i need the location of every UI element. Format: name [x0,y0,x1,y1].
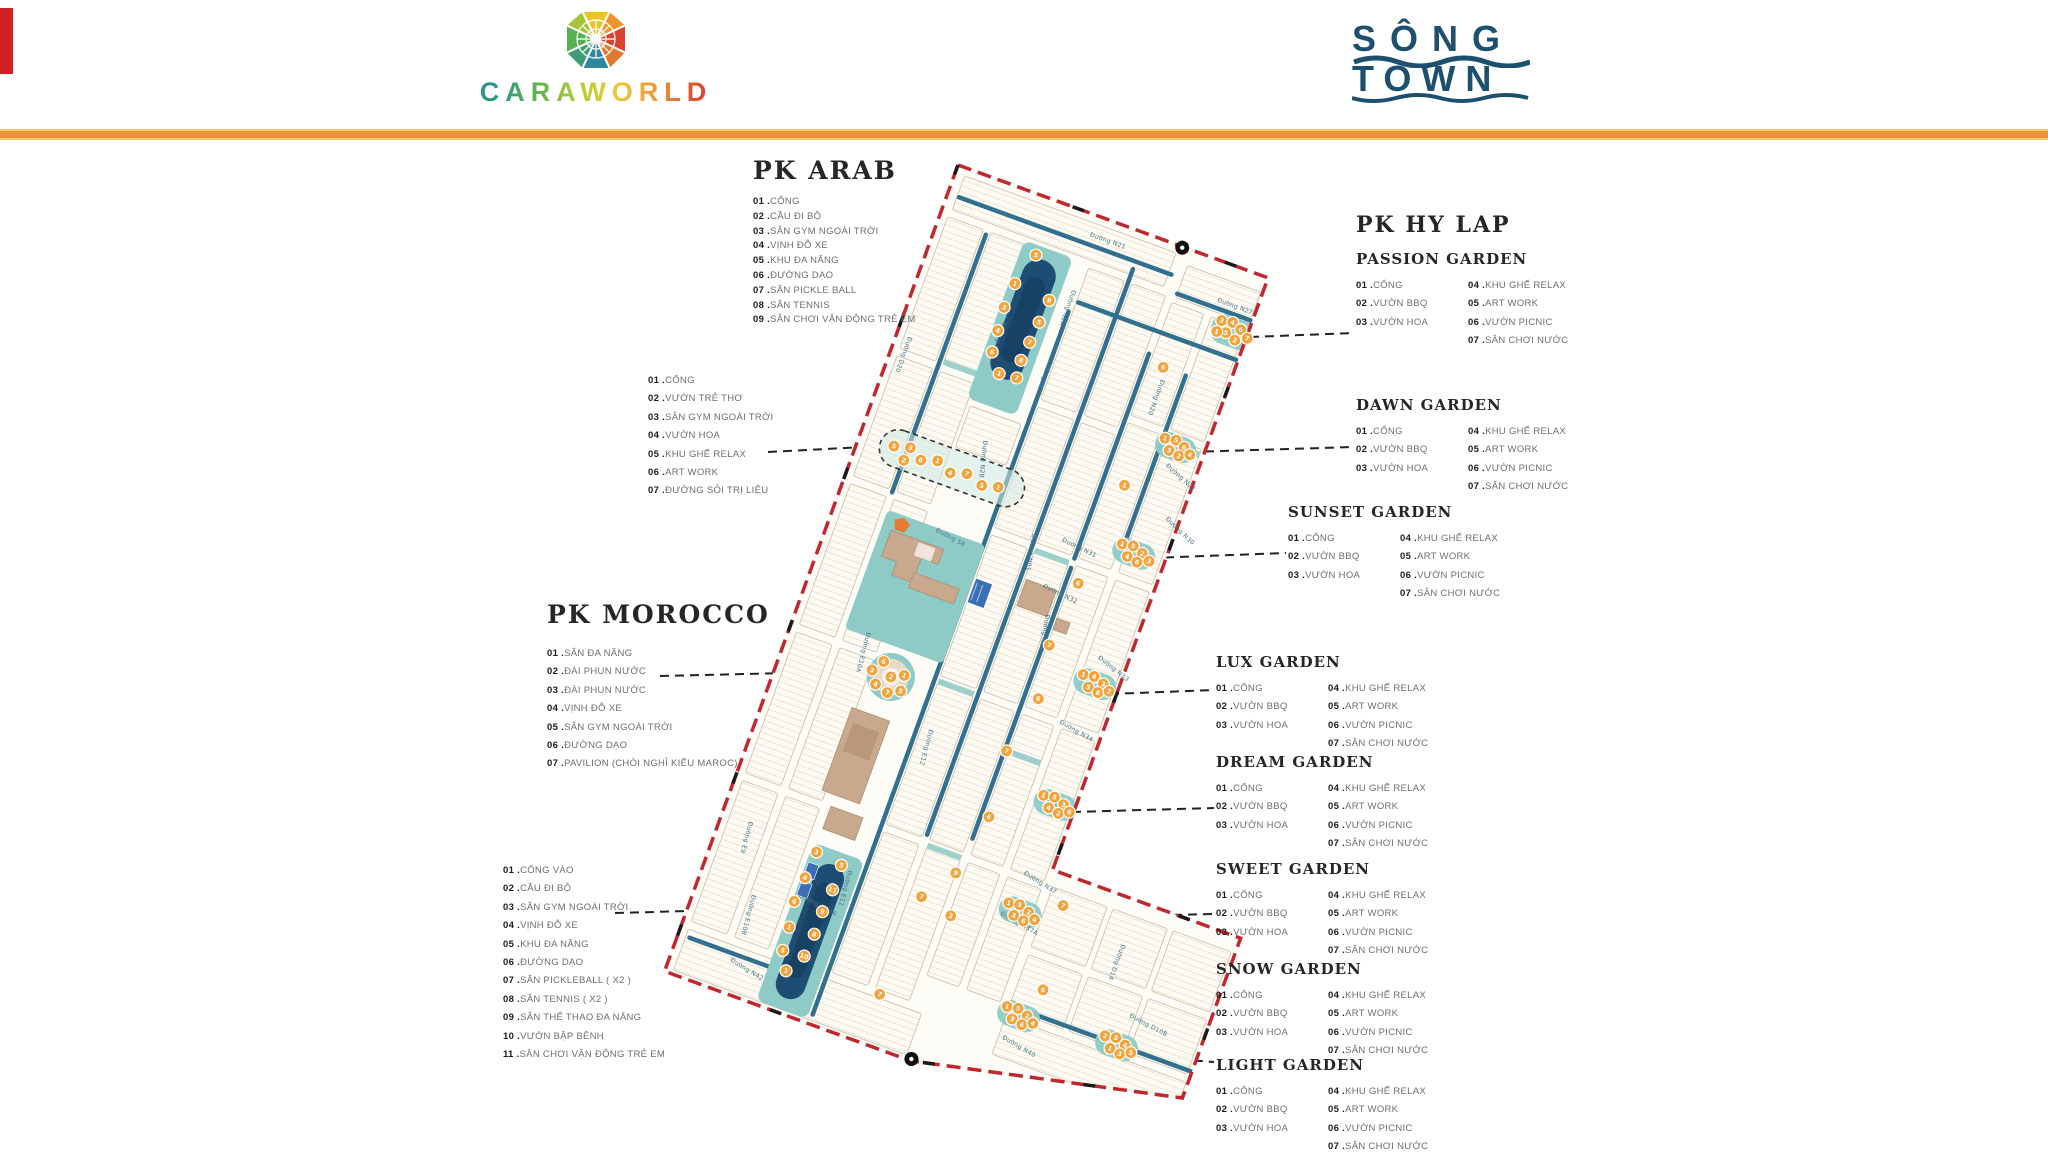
legend-item-label: VƯỜN HOA [665,430,720,441]
legend-item: 04VƯỜN HOA [648,427,773,445]
legend-item: 06VƯỜN PICNIC [1468,314,1598,332]
garden-items-left: 01CỔNG02VƯỜN BBQ03VƯỜN HOA [1288,530,1400,604]
legend-item-number: 07 [648,482,665,500]
legend-item: 05KHU GHẾ RELAX [648,446,773,464]
legend-item-label: SÂN CHƠI NƯỚC [1345,1141,1428,1152]
garden-items-right: 04KHU GHẾ RELAX05ART WORK06VƯỜN PICNIC07… [1328,780,1458,854]
legend-item-number: 07 [753,284,770,299]
legend-item-number: 03 [1216,1024,1233,1042]
legend-item-label: SÂN CHƠI NƯỚC [1485,335,1568,346]
legend-item-label: VƯỜN HOA [1305,570,1360,581]
legend-item: 03VƯỜN HOA [1216,1120,1328,1138]
legend-item-number: 04 [1328,1083,1345,1101]
legend-item-label: ĐƯỜNG DẠO [520,957,583,968]
legend-item: 02VƯỜN BBQ [1216,698,1328,716]
legend-pk-morocco: PK MOROCCO 01SÂN ĐA NĂNG02ĐÀI PHUN NƯỚC0… [547,600,770,774]
garden-items-left: 01CỔNG02VƯỜN BBQ03VƯỜN HOA [1216,780,1328,854]
header: CARAWORLD SÔNG TOWN [0,0,2048,129]
legend-item-label: ART WORK [665,467,718,478]
garden-title: LUX GARDEN [1216,653,1458,671]
legend-item: 04KHU GHẾ RELAX [1328,780,1458,798]
legend-item: 03ĐÀI PHUN NƯỚC [547,682,770,700]
legend-item-number: 05 [1468,295,1485,313]
legend-item-label: KHU GHẾ RELAX [1485,426,1566,437]
legend-item-number: 03 [1356,314,1373,332]
legend-item-label: CỔNG [1373,280,1403,291]
legend-item: 04KHU GHẾ RELAX [1468,423,1598,441]
legend-item-label: ART WORK [1345,701,1398,712]
legend-item: 04KHU GHẾ RELAX [1468,277,1598,295]
legend-item-number: 04 [503,917,520,935]
legend-item: 05KHU ĐA NĂNG [753,254,916,269]
legend-item-label: SÂN CHƠI NƯỚC [1345,1045,1428,1056]
legend-item-number: 01 [1216,780,1233,798]
legend-item-number: 01 [503,862,520,880]
site-map: Đường N21Đường N2AĐường N2CĐường N2BĐườn… [0,0,2048,1152]
legend-item-label: VƯỜN PICNIC [1345,1123,1413,1134]
legend-item-number: 07 [1468,332,1485,350]
legend-item: 07SÂN CHƠI NƯỚC [1468,478,1598,496]
legend-item-label: VƯỜN PICNIC [1485,463,1553,474]
legend-item-label: VƯỜN BBQ [1233,908,1288,919]
legend-item-label: ART WORK [1485,444,1538,455]
pk-morocco-title: PK MOROCCO [547,600,770,629]
legend-item: 03VƯỜN HOA [1216,924,1328,942]
legend-item-label: SÂN PICKLE BALL [770,285,856,296]
caraworld-logo: CARAWORLD [462,3,730,108]
legend-item: 02VƯỜN TRẺ THƠ [648,390,773,408]
legend-item: 04VỊNH ĐỖ XE [503,917,665,935]
legend-item-label: SÂN CHƠI NƯỚC [1345,945,1428,956]
legend-item-label: CỔNG [1233,1086,1263,1097]
legend-item: 05KHU ĐA NĂNG [503,936,665,954]
legend-item: 09SÂN THỂ THAO ĐA NĂNG [503,1009,665,1027]
morocco-south-items: 01CỔNG VÀO02CẦU ĐI BỘ03SÂN GYM NGOÀI TRỜ… [503,862,665,1064]
legend-item: 01SÂN ĐA NĂNG [547,645,770,663]
legend-item-number: 04 [753,239,770,254]
legend-item-number: 04 [547,700,564,718]
legend-item-label: VƯỜN PICNIC [1345,927,1413,938]
legend-item-number: 04 [648,427,665,445]
legend-item-number: 09 [753,313,770,328]
legend-item-number: 05 [753,254,770,269]
legend-item: 07SÂN PICKLEBALL ( X2 ) [503,972,665,990]
legend-item-number: 06 [1328,817,1345,835]
garden-items-right: 04KHU GHẾ RELAX05ART WORK06VƯỜN PICNIC07… [1400,530,1530,604]
legend-item: 04KHU GHẾ RELAX [1328,987,1458,1005]
garden-legend-dawn-garden: DAWN GARDEN01CỔNG02VƯỜN BBQ03VƯỜN HOA04K… [1356,396,1598,497]
legend-item-label: VƯỜN PICNIC [1345,1027,1413,1038]
legend-item-number: 08 [753,299,770,314]
songtown-word-song: SÔNG [1352,22,1542,56]
legend-item-number: 07 [1468,478,1485,496]
legend-item-label: ART WORK [1345,908,1398,919]
legend-item-number: 05 [503,936,520,954]
legend-item-number: 06 [547,737,564,755]
legend-item-number: 04 [1328,780,1345,798]
legend-item-label: ART WORK [1485,298,1538,309]
legend-item-number: 07 [1328,835,1345,853]
legend-item-number: 02 [547,663,564,681]
legend-item: 05ART WORK [1400,548,1530,566]
legend-item-label: SÂN CHƠI NƯỚC [1417,588,1500,599]
legend-item-label: VƯỜN PICNIC [1345,720,1413,731]
legend-item: 07PAVILION (CHÒI NGHỈ KIỂU MAROC) [547,755,770,773]
legend-item-label: SÂN THỂ THAO ĐA NĂNG [520,1012,641,1023]
legend-item-label: VƯỜN PICNIC [1485,317,1553,328]
legend-item: 01CỔNG [1216,987,1328,1005]
legend-item-number: 03 [648,409,665,427]
legend-item-label: SÂN CHƠI VẬN ĐỘNG TRẺ EM [770,314,916,325]
legend-item-label: ART WORK [1345,1104,1398,1115]
legend-item-number: 04 [1328,987,1345,1005]
legend-item-label: CẦU ĐI BỘ [520,883,571,894]
legend-pk-arab: PK ARAB 01CỔNG02CẦU ĐI BỘ03SÂN GYM NGOÀI… [753,156,916,328]
legend-item-label: VƯỜN HOA [1233,820,1288,831]
legend-item-number: 06 [1468,460,1485,478]
legend-item: 05ART WORK [1328,798,1458,816]
legend-item: 06ĐƯỜNG DẠO [753,269,916,284]
legend-item: 05ART WORK [1328,1005,1458,1023]
legend-item-label: VƯỜN HOA [1373,317,1428,328]
legend-item: 06ĐƯỜNG DẠO [547,737,770,755]
legend-item-label: VƯỜN BBQ [1233,801,1288,812]
legend-item: 06VƯỜN PICNIC [1328,924,1458,942]
legend-item-label: ART WORK [1345,801,1398,812]
legend-item: 01CỔNG [753,195,916,210]
legend-item: 06VƯỜN PICNIC [1328,1024,1458,1042]
legend-item-label: ART WORK [1345,1008,1398,1019]
legend-item-number: 06 [1400,567,1417,585]
legend-morocco-south: 01CỔNG VÀO02CẦU ĐI BỘ03SÂN GYM NGOÀI TRỜ… [503,862,665,1064]
legend-item: 03VƯỜN HOA [1216,717,1328,735]
legend-item-label: SÂN GYM NGOÀI TRỜI [770,226,878,237]
legend-item-number: 02 [753,210,770,225]
legend-item-number: 05 [1328,1005,1345,1023]
legend-item-number: 01 [1356,423,1373,441]
legend-item-label: KHU ĐA NĂNG [520,939,589,950]
legend-item: 04KHU GHẾ RELAX [1328,680,1458,698]
legend-item: 01CỔNG [1356,277,1468,295]
legend-item: 08SÂN TENNIS [753,299,916,314]
legend-item: 02VƯỜN BBQ [1216,905,1328,923]
legend-item-label: SÂN ĐA NĂNG [564,648,632,659]
garden-title: PASSION GARDEN [1356,250,1598,268]
legend-item: 01CỔNG [1356,423,1468,441]
legend-item-number: 02 [648,390,665,408]
legend-item-label: SÂN TENNIS [770,300,830,311]
legend-item: 01CỔNG [648,372,773,390]
legend-item-label: CỔNG [1305,533,1335,544]
legend-item: 05ART WORK [1468,295,1598,313]
garden-items-right: 04KHU GHẾ RELAX05ART WORK06VƯỜN PICNIC07… [1468,423,1598,497]
legend-item-number: 03 [1216,924,1233,942]
legend-item: 07SÂN CHƠI NƯỚC [1400,585,1530,603]
legend-item-number: 03 [1288,567,1305,585]
pk-hy-lap-title: PK HY LAP [1356,212,1511,238]
legend-item: 07SÂN PICKLE BALL [753,284,916,299]
legend-item: 05SÂN GYM NGOÀI TRỜI [547,719,770,737]
garden-legend-passion-garden: PASSION GARDEN01CỔNG02VƯỜN BBQ03VƯỜN HOA… [1356,250,1598,351]
legend-item: 04KHU GHẾ RELAX [1328,1083,1458,1101]
legend-item: 02VƯỜN BBQ [1356,441,1468,459]
legend-item-number: 03 [1216,717,1233,735]
legend-item-label: CỔNG [770,196,800,207]
legend-item-label: ĐÀI PHUN NƯỚC [564,666,646,677]
pk-morocco-items: 01SÂN ĐA NĂNG02ĐÀI PHUN NƯỚC03ĐÀI PHUN N… [547,645,770,774]
legend-item: 06VƯỜN PICNIC [1400,567,1530,585]
legend-item: 02VƯỜN BBQ [1288,548,1400,566]
legend-item: 06VƯỜN PICNIC [1328,717,1458,735]
legend-item-number: 02 [1216,1005,1233,1023]
legend-pk-hy-lap-title: PK HY LAP [1356,212,1511,238]
legend-item: 03SÂN GYM NGOÀI TRỜI [753,225,916,240]
legend-item-number: 07 [1400,585,1417,603]
arab-garden-items: 01CỔNG02VƯỜN TRẺ THƠ03SÂN GYM NGOÀI TRỜI… [648,372,773,501]
garden-title: SWEET GARDEN [1216,860,1458,878]
legend-item-number: 05 [648,446,665,464]
legend-item-number: 01 [547,645,564,663]
legend-item-label: KHU ĐA NĂNG [770,255,839,266]
legend-item: 07ĐƯỜNG SỎI TRỊ LIỆU [648,482,773,500]
legend-item-number: 03 [1216,817,1233,835]
legend-item-number: 09 [503,1009,520,1027]
legend-item-number: 05 [547,719,564,737]
legend-item-number: 01 [648,372,665,390]
legend-item: 06ART WORK [648,464,773,482]
legend-item-number: 05 [1328,798,1345,816]
garden-title: SNOW GARDEN [1216,960,1458,978]
legend-item-label: ĐƯỜNG DẠO [564,740,627,751]
legend-item: 01CỔNG [1288,530,1400,548]
legend-item: 02VƯỜN BBQ [1216,1005,1328,1023]
legend-item: 05ART WORK [1328,905,1458,923]
legend-item: 06ĐƯỜNG DẠO [503,954,665,972]
legend-item-number: 04 [1468,423,1485,441]
garden-items-left: 01CỔNG02VƯỜN BBQ03VƯỜN HOA [1216,680,1328,754]
legend-item: 01CỔNG [1216,1083,1328,1101]
legend-item: 11SÂN CHƠI VẬN ĐỘNG TRẺ EM [503,1046,665,1064]
garden-legend-sweet-garden: SWEET GARDEN01CỔNG02VƯỜN BBQ03VƯỜN HOA04… [1216,860,1458,961]
legend-item: 10VƯỜN BẬP BÊNH [503,1028,665,1046]
legend-item-number: 05 [1400,548,1417,566]
legend-item-number: 04 [1468,277,1485,295]
legend-item-label: VƯỜN HOA [1233,927,1288,938]
legend-item-number: 03 [503,899,520,917]
garden-items-left: 01CỔNG02VƯỜN BBQ03VƯỜN HOA [1356,423,1468,497]
garden-items-left: 01CỔNG02VƯỜN BBQ03VƯỜN HOA [1216,1083,1328,1157]
legend-item-label: CỔNG [1233,783,1263,794]
legend-item: 09SÂN CHƠI VẬN ĐỘNG TRẺ EM [753,313,916,328]
legend-item-number: 03 [753,225,770,240]
garden-legend-light-garden: LIGHT GARDEN01CỔNG02VƯỜN BBQ03VƯỜN HOA04… [1216,1056,1458,1157]
legend-item-label: VƯỜN TRẺ THƠ [665,393,743,404]
legend-item-label: VƯỜN BBQ [1233,1008,1288,1019]
legend-item: 02VƯỜN BBQ [1216,1101,1328,1119]
legend-item-label: VỊNH ĐỖ XE [770,240,828,251]
legend-item-number: 05 [1328,905,1345,923]
legend-item-number: 11 [503,1046,520,1064]
caraworld-wordmark: CARAWORLD [462,77,730,108]
legend-item-number: 01 [1216,987,1233,1005]
legend-item-number: 05 [1468,441,1485,459]
garden-title: LIGHT GARDEN [1216,1056,1458,1074]
legend-item-number: 07 [1328,942,1345,960]
legend-item: 01CỔNG VÀO [503,862,665,880]
legend-item: 05ART WORK [1468,441,1598,459]
legend-item: 01CỔNG [1216,780,1328,798]
legend-item-label: VƯỜN HOA [1233,1027,1288,1038]
legend-item: 04VỊNH ĐỖ XE [547,700,770,718]
legend-item-label: ĐƯỜNG DẠO [770,270,833,281]
legend-item-label: CẦU ĐI BỘ [770,211,821,222]
legend-item-number: 01 [1216,887,1233,905]
legend-item: 02CẦU ĐI BỘ [503,880,665,898]
legend-item-label: VƯỜN HOA [1233,1123,1288,1134]
legend-item-label: KHU GHẾ RELAX [1345,890,1426,901]
legend-item: 05ART WORK [1328,698,1458,716]
legend-item-number: 01 [753,195,770,210]
songtown-logo: SÔNG TOWN [1352,22,1542,104]
legend-item-number: 02 [1356,441,1373,459]
legend-item-number: 04 [1400,530,1417,548]
legend-item: 03VƯỜN HOA [1288,567,1400,585]
legend-item-label: SÂN GYM NGOÀI TRỜI [520,902,628,913]
legend-item-number: 06 [1468,314,1485,332]
red-stripe [0,8,13,74]
legend-item-number: 06 [503,954,520,972]
legend-item-label: VỊNH ĐỖ XE [564,703,622,714]
legend-item-number: 01 [1216,680,1233,698]
legend-item: 02VƯỜN BBQ [1356,295,1468,313]
legend-item: 03VƯỜN HOA [1216,817,1328,835]
legend-item-number: 02 [1356,295,1373,313]
garden-items-right: 04KHU GHẾ RELAX05ART WORK06VƯỜN PICNIC07… [1328,887,1458,961]
garden-items-right: 04KHU GHẾ RELAX05ART WORK06VƯỜN PICNIC07… [1328,680,1458,754]
garden-title: DAWN GARDEN [1356,396,1598,414]
garden-items-right: 04KHU GHẾ RELAX05ART WORK06VƯỜN PICNIC07… [1328,1083,1458,1157]
legend-item-number: 01 [1356,277,1373,295]
legend-item-label: SÂN CHƠI NƯỚC [1345,838,1428,849]
legend-item-label: SÂN CHƠI NƯỚC [1485,481,1568,492]
legend-item-label: KHU GHẾ RELAX [1345,1086,1426,1097]
legend-item-number: 07 [1328,1138,1345,1156]
legend-item: 03VƯỜN HOA [1356,314,1468,332]
legend-item: 04KHU GHẾ RELAX [1400,530,1530,548]
legend-item-number: 10 [503,1028,520,1046]
songtown-word-town: TOWN [1352,64,1542,94]
legend-item-number: 02 [1216,798,1233,816]
legend-item: 07SÂN CHƠI NƯỚC [1468,332,1598,350]
legend-item-label: SÂN PICKLEBALL ( X2 ) [520,975,631,986]
legend-item-label: VƯỜN BBQ [1233,701,1288,712]
legend-item-number: 01 [1288,530,1305,548]
legend-item-label: CỔNG [665,375,695,386]
legend-item: 07SÂN CHƠI NƯỚC [1328,1138,1458,1156]
legend-item: 03VƯỜN HOA [1216,1024,1328,1042]
legend-item-number: 06 [1328,1024,1345,1042]
legend-item-label: KHU GHẾ RELAX [1345,990,1426,1001]
legend-item-number: 08 [503,991,520,1009]
garden-items-right: 04KHU GHẾ RELAX05ART WORK06VƯỜN PICNIC07… [1468,277,1598,351]
legend-item: 02ĐÀI PHUN NƯỚC [547,663,770,681]
legend-item: 03SÂN GYM NGOÀI TRỜI [503,899,665,917]
legend-item-number: 02 [1216,698,1233,716]
legend-item-number: 06 [648,464,665,482]
legend-item-number: 02 [503,880,520,898]
legend-item: 02VƯỜN BBQ [1216,798,1328,816]
garden-legend-lux-garden: LUX GARDEN01CỔNG02VƯỜN BBQ03VƯỜN HOA04KH… [1216,653,1458,754]
legend-item-label: CỔNG VÀO [520,865,574,876]
legend-item-label: VƯỜN HOA [1373,463,1428,474]
legend-item: 07SÂN CHƠI NƯỚC [1328,835,1458,853]
legend-item-label: VỊNH ĐỖ XE [520,920,578,931]
garden-items-left: 01CỔNG02VƯỜN BBQ03VƯỜN HOA [1216,887,1328,961]
legend-item-number: 06 [1328,1120,1345,1138]
pk-arab-title: PK ARAB [753,156,916,185]
legend-item-label: VƯỜN PICNIC [1417,570,1485,581]
legend-item-number: 01 [1216,1083,1233,1101]
garden-items-left: 01CỔNG02VƯỜN BBQ03VƯỜN HOA [1216,987,1328,1061]
legend-item-number: 05 [1328,1101,1345,1119]
legend-item: 03SÂN GYM NGOÀI TRỜI [648,409,773,427]
legend-item-number: 02 [1216,905,1233,923]
legend-item: 04VỊNH ĐỖ XE [753,239,916,254]
legend-item-label: SÂN CHƠI VẬN ĐỘNG TRẺ EM [520,1049,666,1060]
legend-item-label: KHU GHẾ RELAX [1345,683,1426,694]
legend-item: 06VƯỜN PICNIC [1468,460,1598,478]
legend-item-label: KHU GHẾ RELAX [665,449,746,460]
legend-item-label: VƯỜN HOA [1233,720,1288,731]
legend-item: 06VƯỜN PICNIC [1328,1120,1458,1138]
legend-item-label: KHU GHẾ RELAX [1485,280,1566,291]
legend-item-label: CỔNG [1233,890,1263,901]
legend-item-label: VƯỜN BBQ [1233,1104,1288,1115]
legend-item-label: VƯỜN BBQ [1305,551,1360,562]
legend-item-label: SÂN TENNIS ( X2 ) [520,994,608,1005]
legend-item: 05ART WORK [1328,1101,1458,1119]
legend-item-number: 06 [1328,924,1345,942]
legend-item: 01CỔNG [1216,887,1328,905]
legend-item-label: VƯỜN BBQ [1373,444,1428,455]
legend-item-number: 03 [547,682,564,700]
legend-item-label: CỔNG [1233,683,1263,694]
legend-item: 08SÂN TENNIS ( X2 ) [503,991,665,1009]
legend-item: 03VƯỜN HOA [1356,460,1468,478]
legend-item: 01CỔNG [1216,680,1328,698]
legend-item-number: 03 [1216,1120,1233,1138]
garden-items-left: 01CỔNG02VƯỜN BBQ03VƯỜN HOA [1356,277,1468,351]
legend-item: 04KHU GHẾ RELAX [1328,887,1458,905]
legend-item-label: VƯỜN PICNIC [1345,820,1413,831]
legend-item-number: 05 [1328,698,1345,716]
garden-legend-dream-garden: DREAM GARDEN01CỔNG02VƯỜN BBQ03VƯỜN HOA04… [1216,753,1458,854]
legend-item: 07SÂN CHƠI NƯỚC [1328,942,1458,960]
orange-divider [0,129,2048,140]
legend-item-number: 07 [547,755,564,773]
legend-item-number: 06 [1328,717,1345,735]
legend-item-number: 02 [1216,1101,1233,1119]
legend-arab-garden: 01CỔNG02VƯỜN TRẺ THƠ03SÂN GYM NGOÀI TRỜI… [648,372,773,501]
legend-item-number: 06 [753,269,770,284]
legend-item: 02CẦU ĐI BỘ [753,210,916,225]
legend-item-label: VƯỜN BBQ [1373,298,1428,309]
garden-title: DREAM GARDEN [1216,753,1458,771]
garden-items-right: 04KHU GHẾ RELAX05ART WORK06VƯỜN PICNIC07… [1328,987,1458,1061]
legend-item-number: 07 [1328,735,1345,753]
legend-item-label: VƯỜN BẬP BÊNH [520,1031,604,1042]
legend-item-label: ART WORK [1417,551,1470,562]
